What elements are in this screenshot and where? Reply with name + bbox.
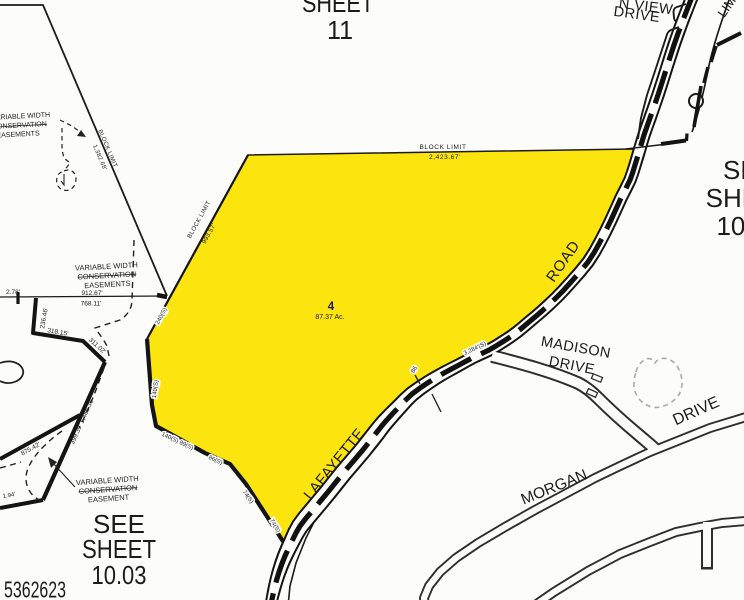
svg-text:4: 4 [328, 301, 335, 313]
svg-text:SEE: SEE [723, 155, 744, 185]
svg-text:2,423.67': 2,423.67' [429, 154, 461, 161]
svg-text:BLOCK LIMIT: BLOCK LIMIT [419, 144, 466, 151]
svg-text:10.03: 10.03 [92, 560, 147, 590]
svg-text:912.67': 912.67' [81, 290, 102, 297]
svg-text:2.78': 2.78' [6, 289, 20, 296]
svg-text:11: 11 [327, 15, 353, 45]
svg-text:SHEET: SHEET [706, 183, 744, 213]
svg-text:768.11': 768.11' [81, 301, 102, 308]
svg-text:10.01: 10.01 [716, 211, 744, 241]
svg-text:87.37 Ac.: 87.37 Ac. [315, 314, 344, 321]
svg-text:5362623: 5362623 [4, 577, 66, 600]
